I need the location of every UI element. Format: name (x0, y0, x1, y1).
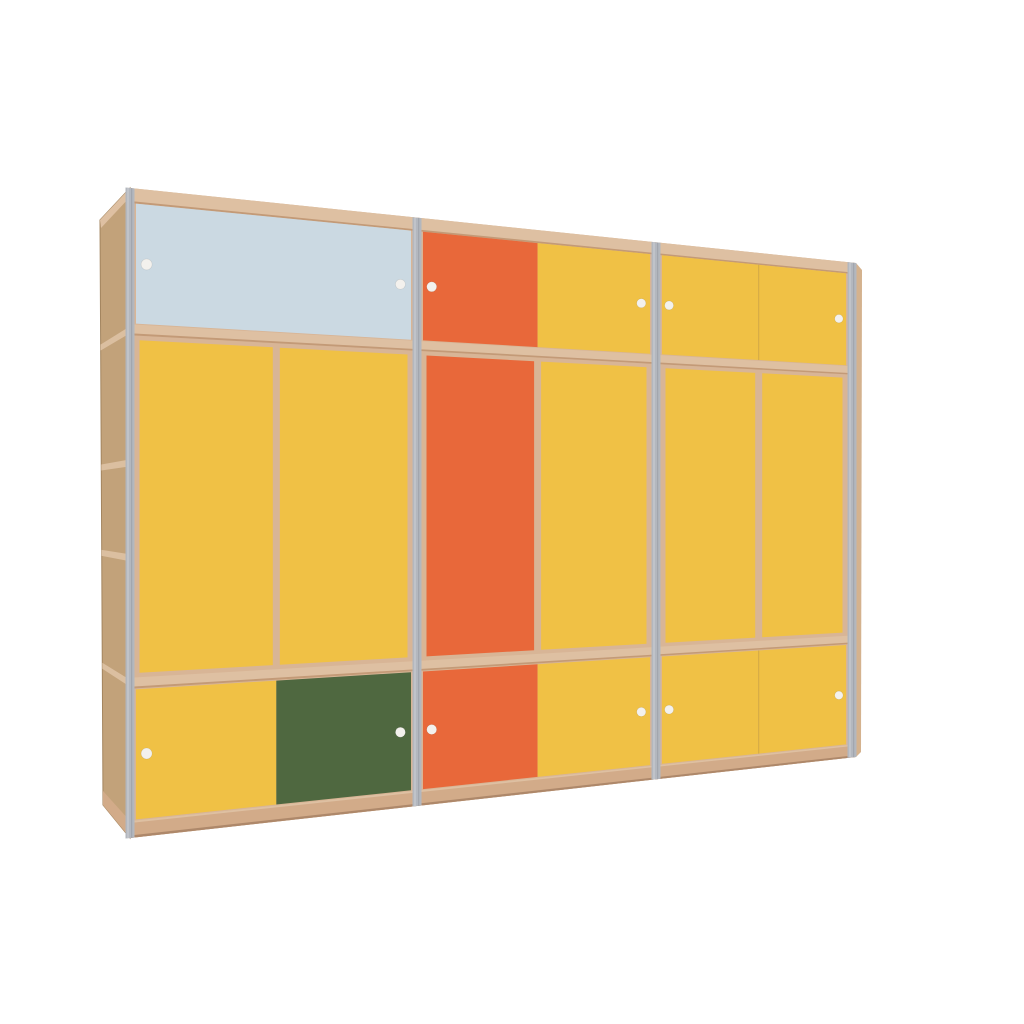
bay2-top-door-right-knob[interactable] (637, 299, 646, 308)
wardrobe-svg (0, 0, 1024, 1024)
bay1-bottom-door-left-knob[interactable] (141, 748, 152, 759)
bay1-wardrobe-door-right[interactable] (280, 348, 408, 665)
bay1-top-door-knob[interactable] (141, 259, 152, 270)
bay3-wardrobe-door-left[interactable] (666, 368, 756, 643)
bay3-bottom-door-right[interactable] (759, 645, 846, 754)
bay1-wardrobe-door-left[interactable] (140, 340, 273, 673)
bay2-wardrobe-door-left[interactable] (427, 356, 535, 657)
bay2-bottom-door-left-knob[interactable] (427, 725, 437, 735)
bay3-wardrobe-door-right[interactable] (762, 373, 842, 637)
bay1-top-door-knob[interactable] (395, 279, 405, 289)
bay2-top-door-left-knob[interactable] (427, 282, 437, 292)
aluminum-profile (413, 217, 422, 806)
right-side-edge (856, 263, 862, 757)
bay2-bottom-door-left[interactable] (423, 664, 538, 789)
aluminum-profile (848, 262, 857, 758)
bay3-bottom-door-left[interactable] (662, 651, 759, 764)
bay3-bottom-door-left-knob[interactable] (665, 705, 674, 714)
bay2-bottom-door-right[interactable] (538, 657, 650, 777)
bay3-top-door-left-knob[interactable] (665, 301, 674, 310)
bay3-top-door-right-knob[interactable] (835, 315, 843, 323)
bay2-bottom-door-right-knob[interactable] (637, 707, 646, 716)
bay2-top-door-right[interactable] (538, 243, 650, 354)
aluminum-profile (652, 242, 661, 780)
bay3-top-door-left[interactable] (662, 255, 759, 360)
bay1-bottom-door-right-knob[interactable] (395, 727, 405, 737)
bay3-bottom-door-right-knob[interactable] (835, 691, 843, 699)
wardrobe-3d-render: 3D render of a three-bay plywood wardrob… (0, 0, 1024, 1024)
bay2-wardrobe-door-right[interactable] (541, 362, 646, 650)
bay3-top-door-right[interactable] (759, 265, 846, 365)
bay1-bottom-door-left[interactable] (136, 681, 276, 820)
bay2-top-door-left[interactable] (423, 232, 538, 347)
bay1-bottom-door-right[interactable] (276, 672, 411, 804)
aluminum-profile (126, 188, 135, 839)
